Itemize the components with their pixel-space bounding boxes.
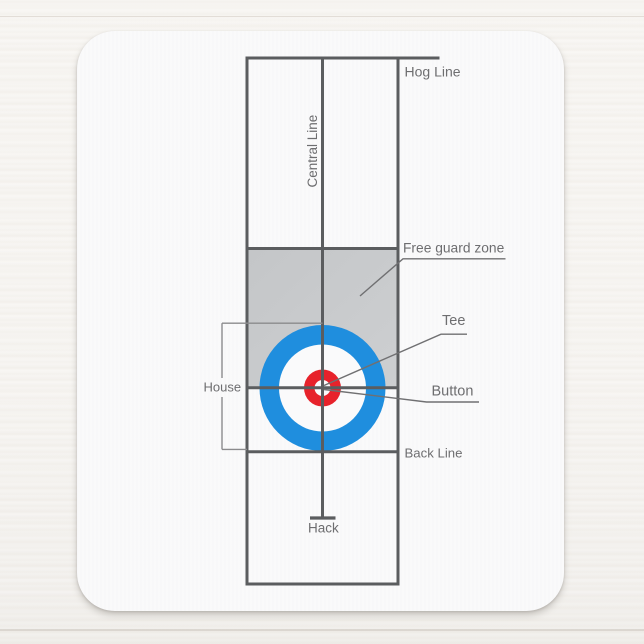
svg-text:Tee: Tee — [442, 313, 465, 329]
svg-text:Hack: Hack — [308, 520, 339, 535]
svg-text:Free guard zone: Free guard zone — [403, 241, 505, 256]
svg-text:Button: Button — [432, 383, 474, 399]
svg-text:Hog Line: Hog Line — [405, 63, 461, 79]
svg-text:House: House — [204, 380, 242, 395]
svg-text:Central Line: Central Line — [305, 115, 320, 188]
svg-text:Back Line: Back Line — [405, 445, 463, 460]
